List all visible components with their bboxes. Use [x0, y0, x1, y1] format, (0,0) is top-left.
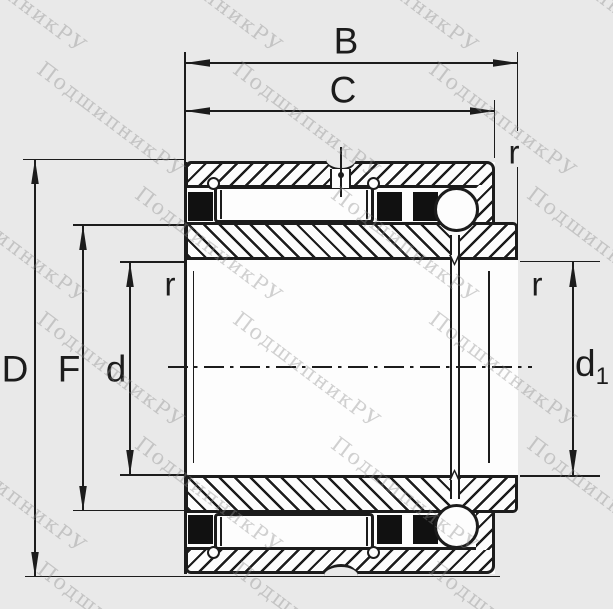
- d1-base: d: [575, 343, 596, 384]
- extension-line-d1-bottom: [520, 475, 600, 477]
- cage-lip-circle-top: [367, 177, 380, 190]
- radius-label-left: r: [165, 268, 176, 301]
- outer-ring-shoulder-top-right: [476, 185, 495, 225]
- roller-end-line: [366, 517, 368, 546]
- watermark-text: ПодшипникРУ: [523, 432, 613, 558]
- extension-line-F-top: [73, 224, 185, 226]
- dimension-line-F: [82, 225, 84, 511]
- extension-line-D-bottom: [25, 576, 500, 578]
- dimension-label-d1: d1: [575, 345, 609, 389]
- arrowhead-C-left: [185, 107, 210, 116]
- inner-ring-needle-top-section: [185, 222, 451, 260]
- extension-line-C-right: [494, 100, 496, 158]
- arrowhead-d-bottom: [126, 450, 135, 475]
- cage-lip-circle-bottom: [207, 546, 220, 559]
- needle-roller-bottom: [214, 513, 374, 550]
- d1-subscript: 1: [596, 363, 609, 390]
- radius-label-top-right: r: [509, 136, 520, 169]
- dimension-label-d: d: [106, 351, 127, 388]
- oil-hole-axis-line: [340, 147, 342, 197]
- arrowhead-D-bottom: [31, 552, 40, 577]
- roller-end-line: [220, 517, 222, 546]
- arrowhead-B-left: [185, 59, 210, 68]
- extension-line-D-top: [23, 159, 185, 161]
- axis-centerline: [168, 366, 532, 368]
- bearing-ball-top: [434, 187, 479, 232]
- extension-line-d1-top: [520, 261, 600, 263]
- outer-ring-shoulder-bottom-right: [476, 510, 495, 550]
- extension-line-B-left: [184, 52, 186, 162]
- dimension-line-B: [185, 62, 518, 64]
- arrowhead-B-right: [493, 59, 518, 68]
- watermark-text: ПодшипникРУ: [33, 557, 190, 609]
- dimension-label-D: D: [2, 351, 29, 388]
- cage-section-bottom: [377, 515, 402, 544]
- dimension-line-D: [34, 159, 36, 577]
- extension-line-F-bottom: [73, 510, 185, 512]
- roller-end-line: [366, 190, 368, 219]
- watermark-text: ПодшипникРУ: [131, 0, 288, 58]
- roller-end-line: [220, 190, 222, 219]
- arrowhead-D-top: [31, 159, 40, 184]
- inner-ring-needle-bottom-section: [185, 475, 451, 513]
- dimension-line-d1: [572, 262, 574, 475]
- outside-notch-top-right: [495, 162, 518, 223]
- watermark-text: ПодшипникРУ: [33, 57, 190, 183]
- dimension-label-F: F: [58, 351, 81, 388]
- bearing-ball-bottom: [434, 504, 479, 549]
- cage-section-bottom: [188, 515, 213, 544]
- watermark-text: ПодшипникРУ: [0, 0, 91, 58]
- extension-line-B-right: [517, 52, 519, 131]
- arrowhead-C-right: [470, 107, 495, 116]
- dimension-line-d: [129, 262, 131, 475]
- radius-label-right: r: [532, 268, 543, 301]
- radius-leader-line: [517, 167, 519, 227]
- cage-lip-circle-top: [207, 177, 220, 190]
- bearing-dimension-drawing: B C D F d d1 r r r ПодшипникРУПодшипникР…: [0, 0, 613, 609]
- cage-section-top: [377, 192, 402, 221]
- dimension-label-C: C: [330, 72, 357, 109]
- watermark-text: ПодшипникРУ: [0, 432, 91, 558]
- arrowhead-d-top: [126, 262, 135, 287]
- watermark-text: ПодшипникРУ: [0, 182, 91, 308]
- cage-section-top: [188, 192, 213, 221]
- arrowhead-F-bottom: [79, 486, 88, 511]
- outside-notch-bottom-right: [495, 512, 518, 574]
- needle-roller-top: [214, 186, 374, 223]
- dimension-label-B: B: [334, 23, 359, 60]
- cage-lip-circle-bottom: [367, 546, 380, 559]
- arrowhead-d1-bottom: [569, 450, 578, 475]
- arrowhead-d1-top: [569, 262, 578, 287]
- watermark-text: ПодшипникРУ: [523, 0, 613, 58]
- arrowhead-F-top: [79, 225, 88, 250]
